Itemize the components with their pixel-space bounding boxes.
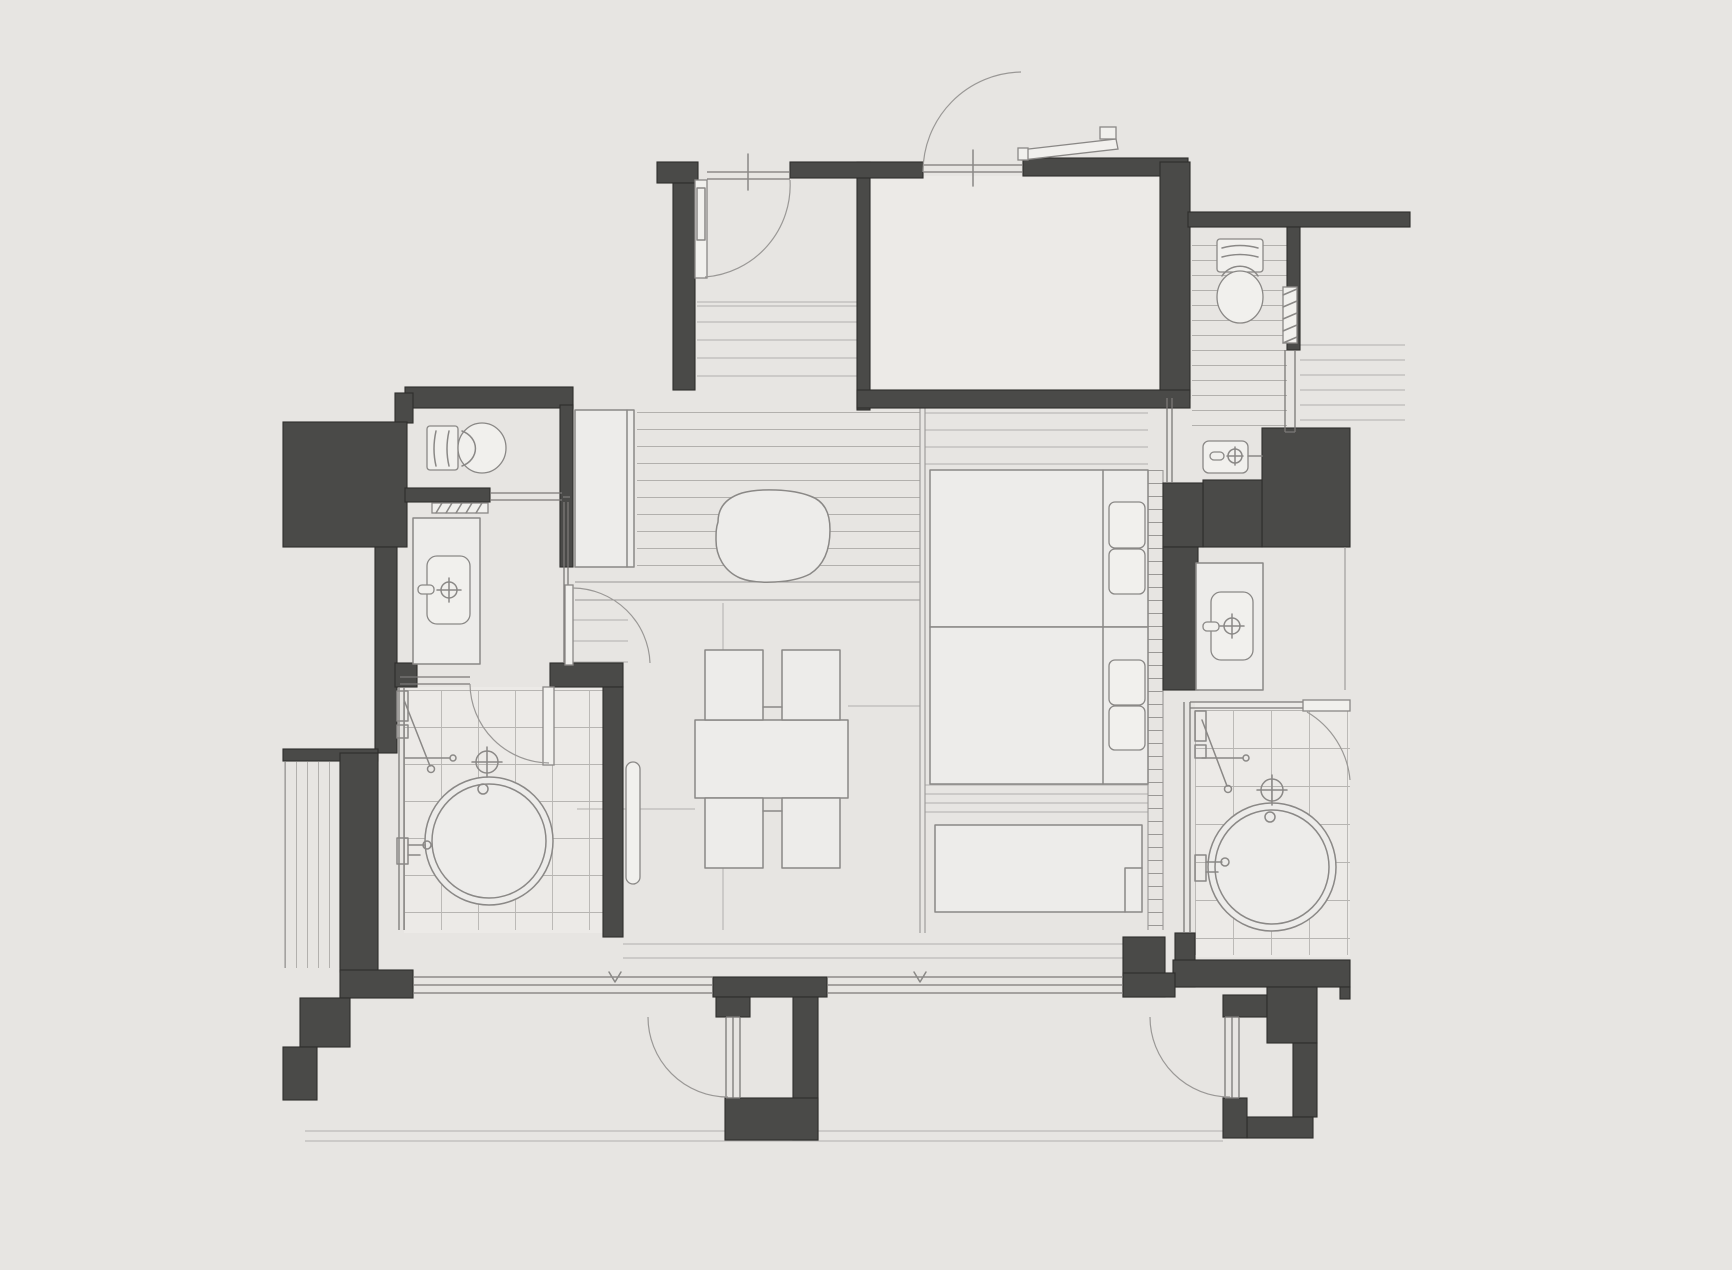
vanity-left: [413, 518, 480, 664]
dining-table: [695, 720, 848, 798]
chair: [782, 650, 840, 720]
window-bench: [935, 825, 1142, 912]
toilet-right: [1217, 239, 1263, 323]
chair: [705, 798, 763, 868]
pillow: [1109, 660, 1145, 705]
chair: [782, 798, 840, 868]
floor-plan-page: [0, 0, 1732, 1270]
headboard-ledge: [1148, 470, 1163, 930]
pocket-door-right-panel: [1283, 287, 1297, 343]
chair: [705, 650, 763, 720]
entry-room-floor: [870, 176, 1160, 390]
floor-plan: [0, 0, 1732, 1270]
twin-bed-upper: [930, 470, 1148, 627]
leaning-mirror: [626, 762, 640, 884]
round-bathtub-left: [425, 777, 553, 905]
pillow: [1109, 502, 1145, 548]
toilet-left: [427, 423, 506, 473]
pillow: [1109, 549, 1145, 594]
closet-cabinet: [575, 410, 634, 567]
vertical-striped-panel: [285, 762, 340, 968]
stone-ottoman: [716, 490, 830, 582]
twin-bed-lower: [930, 627, 1148, 784]
pillow: [1109, 706, 1145, 750]
